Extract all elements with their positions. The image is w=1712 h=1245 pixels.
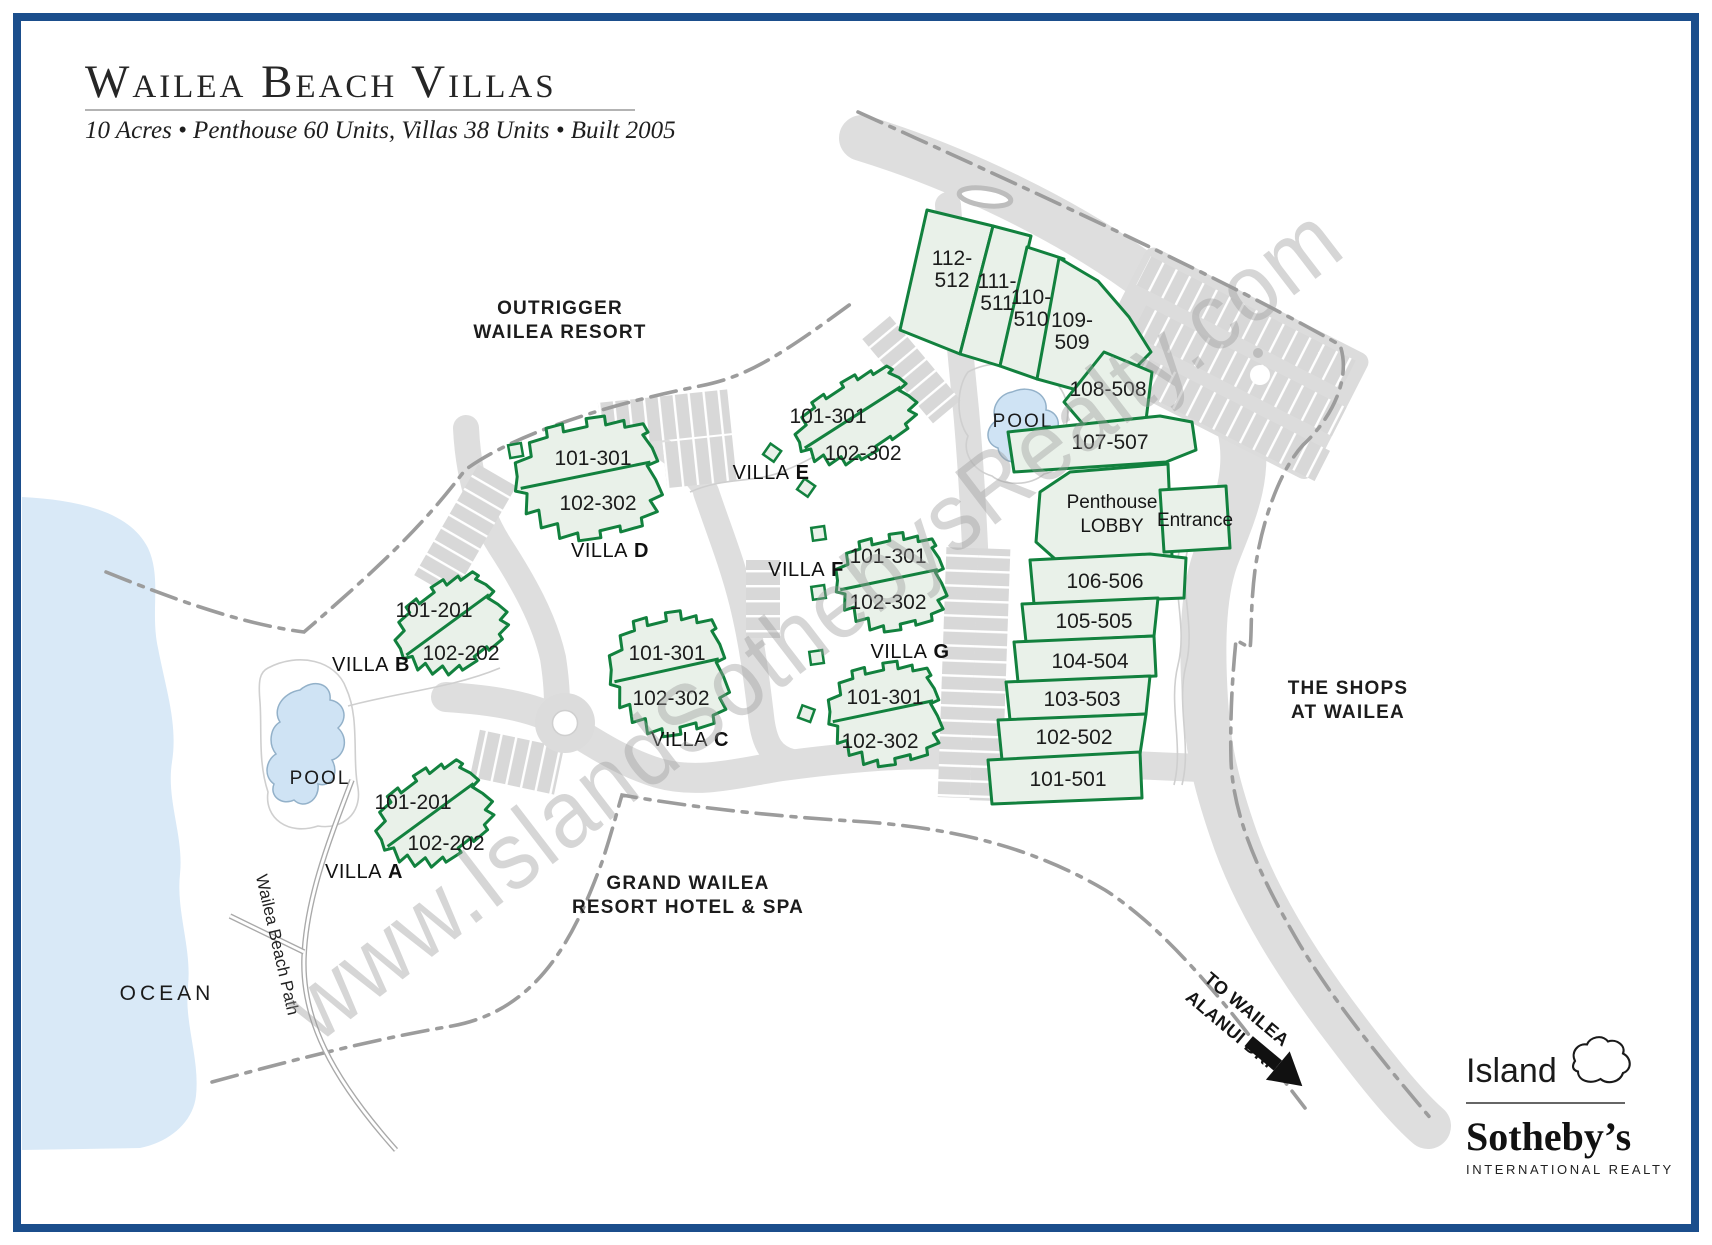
penthouse-entrance-label: Entrance — [1157, 510, 1233, 531]
penthouse-unit-label: 109- — [1051, 309, 1093, 332]
penthouse-unit-label: 512 — [934, 269, 969, 292]
villa-g-unit2: 102-302 — [841, 730, 918, 753]
outrigger-label: OUTRIGGER — [497, 298, 623, 319]
penthouse-unit-label: 105-505 — [1055, 610, 1132, 633]
grand-wailea-label: RESORT HOTEL & SPA — [572, 897, 804, 918]
villa-g-label: VILLAG — [870, 641, 949, 663]
site-map-page: POOL POOL — [0, 0, 1712, 1245]
villa-b-unit2: 102-202 — [422, 642, 499, 665]
cul-de-sac-island — [553, 711, 578, 736]
villa-b-label: VILLAB — [332, 654, 410, 676]
penthouse-unit-label: 106-506 — [1066, 570, 1143, 593]
villa-d-unit1: 101-301 — [554, 447, 631, 470]
shops-at-wailea-label: AT WAILEA — [1291, 702, 1405, 723]
maui-island-icon — [1573, 1037, 1630, 1082]
penthouse-unit-label: 510 — [1013, 308, 1048, 331]
villa-a-unit1: 101-201 — [374, 791, 451, 814]
logo-island-text: Island — [1466, 1052, 1557, 1090]
villa-e-unit2: 102-302 — [824, 442, 901, 465]
penthouse-lobby-label: Penthouse — [1067, 492, 1158, 513]
logo-tagline: INTERNATIONAL REALTY — [1466, 1162, 1674, 1177]
penthouse-lobby-label: LOBBY — [1080, 516, 1144, 537]
logo-sothebys-text: Sotheby’s — [1466, 1114, 1631, 1159]
villa-e-unit1: 101-301 — [789, 405, 866, 428]
lower-pool-label: POOL — [290, 768, 351, 789]
page-subtitle: 10 Acres • Penthouse 60 Units, Villas 38… — [85, 117, 676, 144]
page-title: Wailea Beach Villas — [85, 56, 557, 108]
outrigger-label: WAILEA RESORT — [473, 322, 646, 343]
penthouse-unit-label: 110- — [1011, 286, 1051, 309]
villa-g-unit1: 101-301 — [846, 686, 923, 709]
penthouse-unit-label: 511 — [980, 292, 1013, 315]
villa-e-label: VILLAE — [733, 462, 810, 484]
company-logo: Island Sotheby’s INTERNATIONAL REALTY — [1466, 1037, 1674, 1177]
penthouse-unit-label: 101-501 — [1029, 768, 1106, 791]
shops-at-wailea-label: THE SHOPS — [1288, 678, 1409, 699]
villa-b-unit1: 101-201 — [395, 599, 472, 622]
grand-wailea-label: GRAND WAILEA — [606, 873, 769, 894]
penthouse-unit-label: 103-503 — [1043, 688, 1120, 711]
site-map: POOL POOL — [0, 0, 1712, 1245]
penthouse-unit-label: 112- — [932, 247, 972, 270]
parking-island — [1250, 365, 1270, 385]
ocean-label: OCEAN — [120, 982, 215, 1005]
villa-d-building — [507, 410, 667, 549]
penthouse-unit-label: 104-504 — [1051, 650, 1128, 673]
penthouse-unit-label: 102-502 — [1035, 726, 1112, 749]
villa-d-unit2: 102-302 — [559, 492, 636, 515]
map-header: Wailea Beach Villas 10 Acres • Penthouse… — [85, 56, 676, 144]
villa-d-label: VILLAD — [571, 540, 649, 562]
